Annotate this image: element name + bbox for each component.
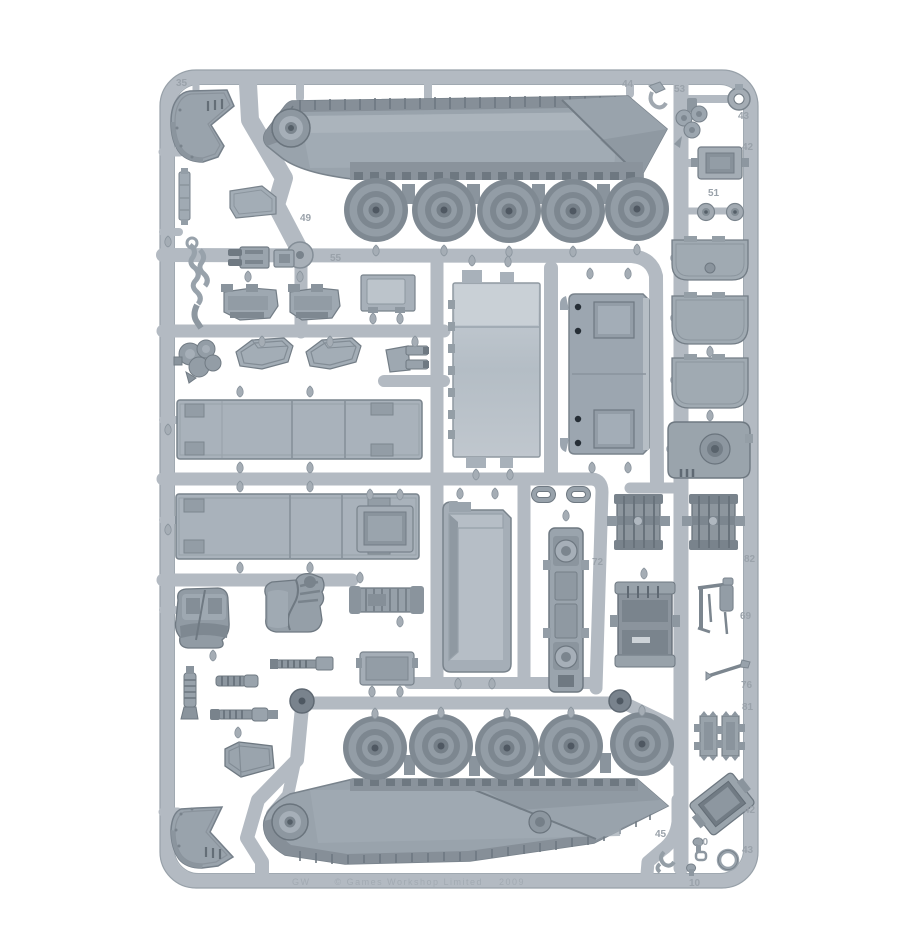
- svg-text:72: 72: [592, 557, 604, 568]
- svg-text:55: 55: [330, 253, 342, 264]
- svg-text:35: 35: [176, 78, 188, 89]
- svg-text:81: 81: [742, 702, 754, 713]
- svg-text:51: 51: [708, 188, 720, 199]
- svg-text:82: 82: [744, 554, 756, 565]
- svg-text:10: 10: [697, 837, 709, 848]
- svg-text:43: 43: [738, 111, 750, 122]
- svg-text:53: 53: [674, 84, 686, 95]
- svg-text:76: 76: [741, 680, 753, 691]
- svg-text:42: 42: [744, 805, 756, 816]
- svg-text:42: 42: [742, 142, 754, 153]
- svg-text:44: 44: [622, 79, 634, 90]
- svg-text:10: 10: [689, 878, 701, 889]
- svg-text:45: 45: [655, 829, 667, 840]
- svg-text:49: 49: [300, 213, 312, 224]
- svg-text:43: 43: [742, 845, 754, 856]
- svg-text:GW © Games Workshop Limit: GW © Games Workshop Limited 2009: [292, 877, 525, 887]
- svg-text:69: 69: [740, 611, 752, 622]
